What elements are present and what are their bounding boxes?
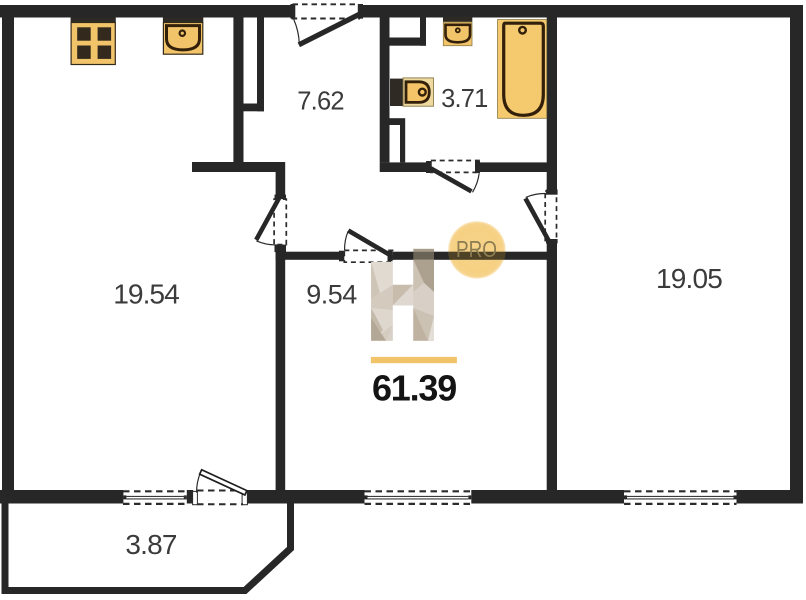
svg-text:19.05: 19.05 <box>656 263 722 294</box>
svg-text:9.54: 9.54 <box>306 279 357 309</box>
svg-text:7.62: 7.62 <box>297 88 343 116</box>
svg-text:61.39: 61.39 <box>372 368 456 409</box>
svg-text:PRO: PRO <box>456 236 497 262</box>
svg-text:3.87: 3.87 <box>125 529 177 560</box>
svg-text:3.71: 3.71 <box>441 85 487 113</box>
svg-text:19.54: 19.54 <box>113 278 179 310</box>
